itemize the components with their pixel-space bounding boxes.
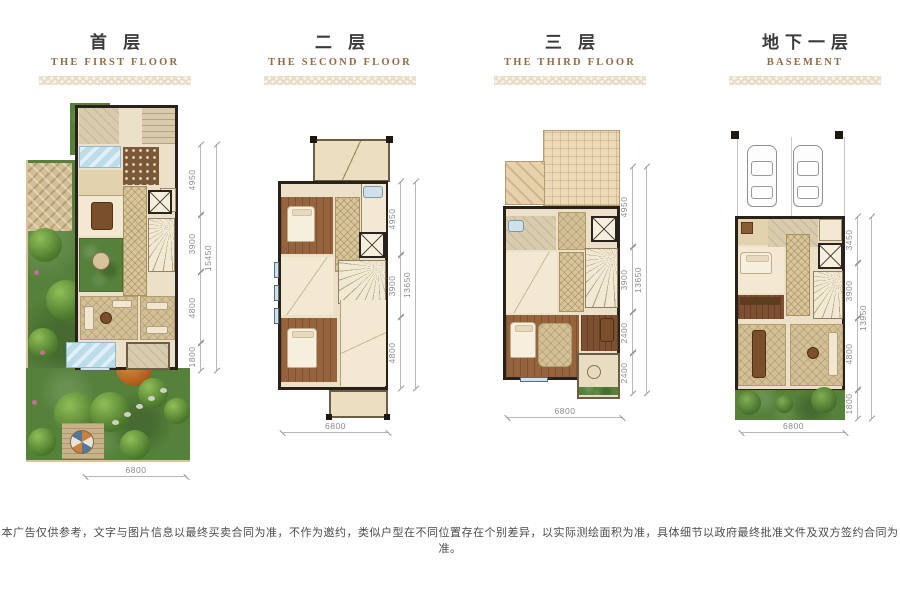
dim-total: 13650	[415, 182, 416, 388]
flower	[40, 350, 45, 355]
bush	[737, 391, 761, 415]
plan-second-floor: 4950 3900 4800 13650 6800	[250, 130, 450, 440]
sofa	[146, 302, 168, 310]
long-table	[752, 330, 766, 378]
dim-segment: 4950	[400, 182, 401, 255]
tree	[28, 228, 62, 262]
dim-segment: 4800	[200, 272, 201, 343]
dim-width: 6800	[283, 432, 388, 433]
dim-total: 15450	[216, 145, 217, 370]
dim-width-label: 6800	[783, 421, 804, 431]
entry-terrace	[79, 108, 119, 144]
bed	[287, 328, 317, 368]
staircase	[148, 218, 175, 272]
bed	[510, 322, 536, 358]
elevator	[359, 232, 385, 258]
ornament-divider	[39, 76, 191, 85]
dim-total-label: 13950	[859, 304, 868, 330]
dressing-room	[340, 300, 386, 386]
stepping-stone	[148, 396, 155, 401]
plan-first-floor: 4950 3900 4800 1800 15450 6800	[20, 100, 235, 495]
bay-window	[274, 262, 279, 278]
dim-label: 4950	[188, 170, 197, 191]
rear-porch	[126, 342, 170, 370]
title-en-second: THE SECOND FLOOR	[255, 57, 425, 68]
column	[326, 414, 332, 420]
skylight-pool	[66, 342, 116, 368]
car	[793, 145, 823, 207]
coffee-table	[100, 312, 112, 324]
header-third-floor: 三 层 THE THIRD FLOOR	[485, 28, 655, 85]
header-second-floor: 二 层 THE SECOND FLOOR	[255, 28, 425, 85]
dim-label: 3900	[188, 233, 197, 254]
sofa	[828, 332, 838, 376]
dim-segment: 3900	[400, 255, 401, 317]
dim-total: 13650	[646, 167, 647, 393]
ornament-divider	[729, 76, 881, 85]
corridor-runner	[123, 186, 147, 296]
title-cn-third: 三 层	[485, 28, 655, 53]
dim-label: 3900	[845, 280, 854, 301]
tree	[138, 378, 168, 408]
dim-width: 6800	[86, 476, 186, 477]
bedroom-two	[281, 257, 333, 315]
tree	[120, 430, 150, 460]
roof-terrace	[313, 139, 390, 182]
terrace-table	[587, 365, 601, 379]
dim-label: 3900	[388, 276, 397, 297]
dim-label: 4800	[845, 344, 854, 365]
bay-window	[274, 308, 279, 324]
column	[310, 136, 317, 143]
dim-label: 1800	[845, 394, 854, 415]
boiler	[741, 222, 753, 234]
dim-width-label: 6800	[325, 421, 346, 431]
entry-steps	[142, 108, 175, 144]
coffee-table	[807, 347, 819, 359]
bed	[287, 206, 315, 242]
courtyard-table	[92, 252, 110, 270]
advert-canvas: 首 层 THE FIRST FLOOR 二 层 THE SECOND FLOOR…	[0, 0, 900, 600]
staircase	[585, 248, 618, 308]
dim-total-label: 13650	[403, 272, 412, 298]
corridor-runner	[559, 252, 584, 312]
bush	[775, 395, 793, 413]
staircase	[338, 260, 386, 304]
bay-window	[274, 285, 279, 301]
elevator	[148, 190, 172, 214]
dim-segment: 2400	[632, 312, 633, 353]
elevator	[591, 216, 617, 242]
title-cn-first: 首 层	[30, 28, 200, 53]
stepping-stone	[136, 404, 143, 409]
disclaimer-text: 本广告仅供参考，文字与图片信息以最终买卖合同为准，不作为邀约，类似户型在不同位置…	[0, 524, 900, 556]
parasol-umbrella	[70, 430, 94, 454]
sofa	[146, 326, 168, 334]
dim-total-label: 13650	[634, 267, 643, 293]
elevator	[818, 243, 843, 269]
dim-segment: 4950	[632, 167, 633, 247]
sofa	[84, 306, 94, 330]
kitchen-counter	[81, 172, 121, 180]
column	[386, 136, 393, 143]
water-feature	[79, 146, 121, 168]
dim-label: 4800	[188, 297, 197, 318]
sofa	[112, 300, 132, 308]
dim-label: 2400	[620, 322, 629, 343]
bathroom	[819, 219, 842, 241]
dining-table	[91, 202, 113, 230]
dim-total: 13950	[871, 217, 872, 418]
dim-segment: 1800	[857, 390, 858, 418]
dim-label: 4950	[620, 197, 629, 218]
stepping-stone	[112, 420, 119, 425]
roof-deck	[543, 130, 620, 206]
garden-pergola	[28, 163, 72, 231]
title-en-third: THE THIRD FLOOR	[485, 57, 655, 68]
plan-basement: 3450 3900 4800 1800 13950 6800	[715, 125, 900, 445]
bed	[740, 252, 772, 274]
bar-counter	[740, 297, 780, 305]
column	[731, 131, 739, 139]
dim-label: 3900	[620, 269, 629, 290]
dim-width: 6800	[508, 417, 622, 418]
bedroom-rug	[538, 323, 572, 367]
dim-segment: 4950	[200, 145, 201, 215]
flower	[32, 400, 37, 405]
tree	[164, 398, 190, 424]
stepping-stone	[160, 388, 167, 393]
stepping-stone	[124, 412, 131, 417]
dim-label: 1800	[188, 346, 197, 367]
title-cn-second: 二 层	[255, 28, 425, 53]
dim-width-label: 6800	[555, 406, 576, 416]
dim-total-label: 15450	[204, 244, 213, 270]
staircase	[813, 271, 843, 319]
dim-width-label: 6800	[126, 465, 147, 475]
title-cn-basement: 地下一层	[720, 28, 890, 53]
bathtub	[508, 220, 524, 232]
tree	[28, 428, 56, 456]
header-basement: 地下一层 BASEMENT	[720, 28, 890, 85]
ornament-divider	[264, 76, 416, 85]
dim-width: 6800	[742, 432, 845, 433]
dim-segment: 3450	[857, 217, 858, 263]
title-en-basement: BASEMENT	[720, 57, 890, 68]
column	[384, 414, 390, 420]
desk	[600, 318, 614, 342]
dim-segment: 3900	[200, 215, 201, 272]
ornament-divider	[494, 76, 646, 85]
planter	[579, 387, 618, 395]
column	[835, 131, 843, 139]
dim-label: 2400	[620, 363, 629, 384]
corridor-runner	[786, 234, 810, 316]
bedroom	[506, 252, 557, 313]
bathtub	[363, 186, 383, 198]
window	[520, 377, 548, 382]
dim-label: 4800	[388, 342, 397, 363]
sloped-roof	[505, 161, 545, 205]
dim-segment: 1800	[200, 343, 201, 370]
car	[747, 145, 777, 207]
bush	[811, 387, 837, 413]
dim-label: 3450	[845, 230, 854, 251]
dim-segment: 2400	[632, 353, 633, 393]
hall-rug	[558, 212, 586, 250]
dim-label: 4950	[388, 208, 397, 229]
flower	[34, 270, 39, 275]
balcony	[329, 390, 388, 418]
plan-third-floor: 4950 3900 2400 2400 13650 6800	[480, 125, 680, 425]
dim-segment: 4800	[400, 317, 401, 388]
header-first-floor: 首 层 THE FIRST FLOOR	[30, 28, 200, 85]
title-en-first: THE FIRST FLOOR	[30, 57, 200, 68]
foyer-mat	[123, 147, 159, 185]
